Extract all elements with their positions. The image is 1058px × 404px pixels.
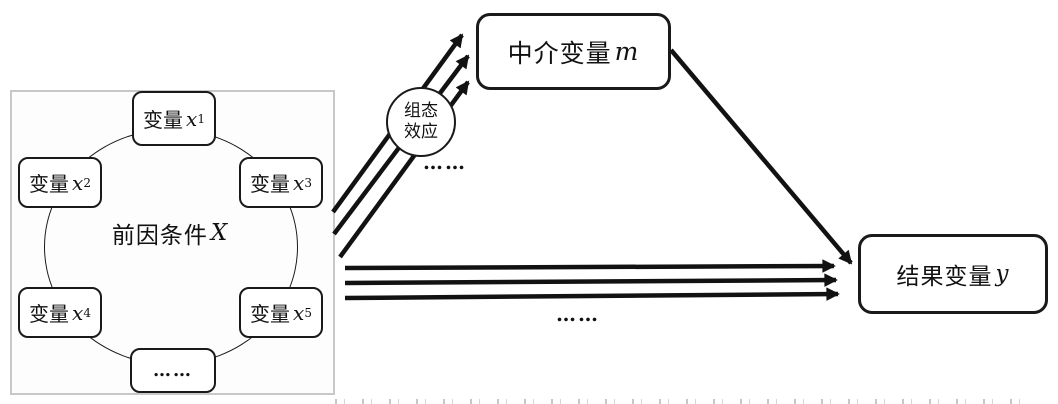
upper-ellipsis: …… bbox=[423, 150, 467, 174]
direct-arrow-2 bbox=[345, 280, 836, 283]
direct-arrow-3 bbox=[345, 294, 838, 298]
mediator-box: 中介变量m bbox=[476, 13, 671, 90]
config-effect-circle: 组态 效应 bbox=[386, 87, 456, 157]
lower-ellipsis: …… bbox=[556, 302, 600, 326]
mediator-outcome-arrow bbox=[671, 50, 851, 263]
config-effect-line2: 效应 bbox=[404, 122, 438, 143]
direct-arrow-1 bbox=[345, 266, 834, 268]
mediator-label: 中介变量 bbox=[508, 34, 612, 70]
diagram-canvas: 前因条件X 变量x1 变量x2 变量x3 变量x4 变量x5 …… bbox=[0, 0, 1058, 404]
mediator-symbol: m bbox=[615, 37, 640, 66]
outcome-symbol: y bbox=[996, 261, 1010, 287]
outcome-box: 结果变量y bbox=[858, 234, 1048, 314]
config-effect-line1: 组态 bbox=[404, 101, 438, 122]
outcome-label: 结果变量 bbox=[897, 257, 993, 291]
